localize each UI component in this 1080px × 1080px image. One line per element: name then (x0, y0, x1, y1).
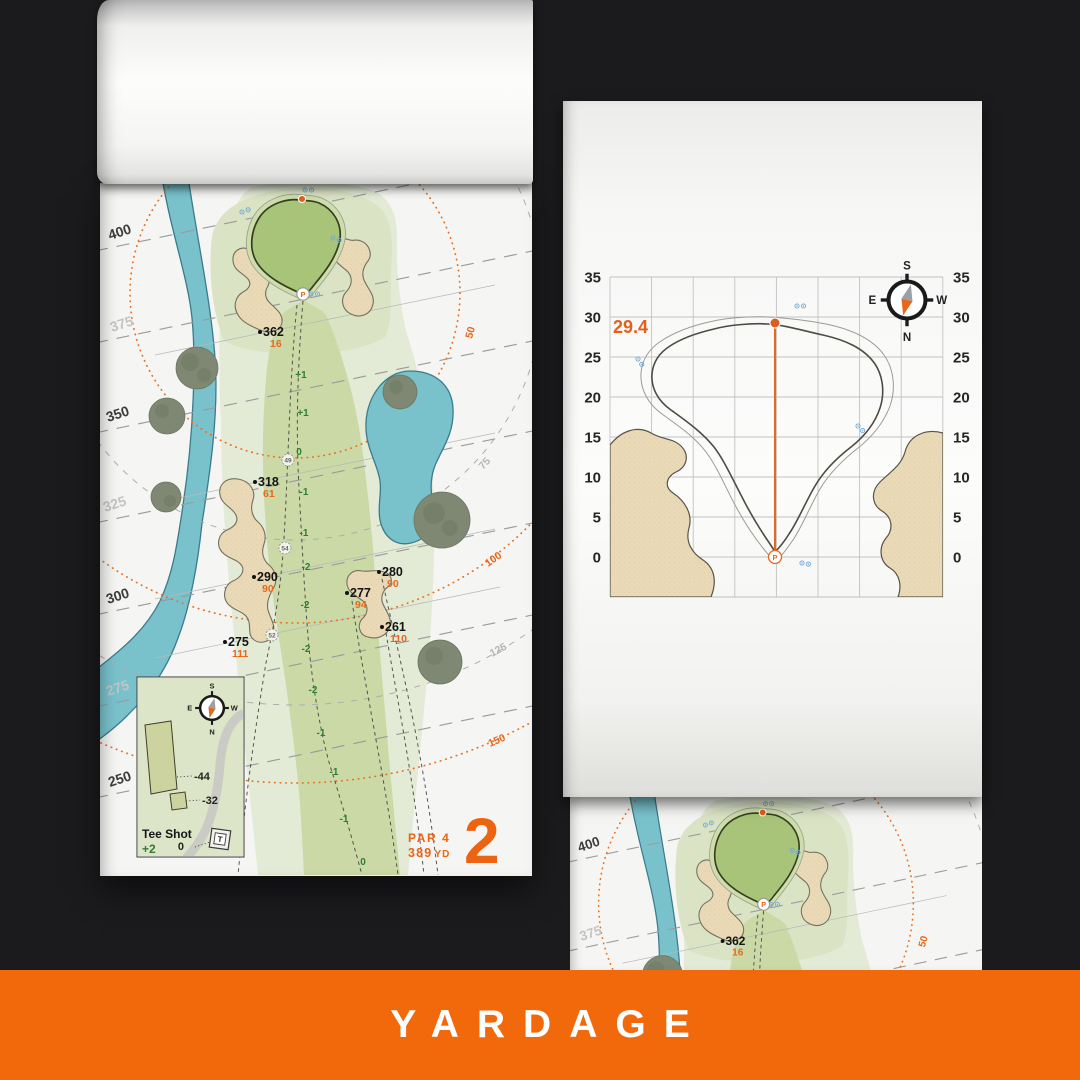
elevation-label: -1 (330, 767, 339, 778)
tee-box-forward (170, 792, 187, 810)
elevation-label: -2 (302, 644, 311, 655)
axis-tick: 20 (584, 390, 601, 407)
elevation-label: 0 (360, 857, 366, 868)
tee-inset-elevation: +2 (142, 842, 156, 856)
axis-tick: 25 (953, 350, 970, 367)
green-detail-page: 35 30 25 20 15 10 5 0 35 30 25 20 15 10 … (563, 101, 982, 797)
axis-tick: 30 (953, 310, 970, 327)
tee-shot-inset: -44 -32 0 T Tee Shot +2 (137, 677, 244, 859)
marker-carry: 318 (258, 475, 279, 489)
elevation-label: -1 (317, 728, 326, 739)
depth-measure: P (769, 318, 782, 564)
elevation-label: +1 (297, 408, 309, 419)
elevation-label: -1 (340, 814, 349, 825)
green-depth-reading: 29.4 (613, 317, 648, 337)
yardage-banner: YARDAGE (0, 970, 1080, 1080)
depth-axis-right: 35 30 25 20 15 10 5 0 (953, 270, 970, 567)
elevation-label: -1 (300, 487, 309, 498)
elevation-label: -1 (300, 528, 309, 539)
tee-inset-title: Tee Shot (142, 827, 192, 841)
marker-to-green: 90 (262, 583, 274, 595)
tee-offset-label: -44 (194, 771, 211, 783)
axis-tick: 30 (584, 310, 601, 327)
hole-map-page: S N W E (100, 183, 532, 876)
pin-label: P (300, 290, 305, 299)
tee-offset-label: 0 (178, 841, 184, 853)
pin-marker: P (297, 288, 309, 300)
marker-to-green: 90 (387, 578, 399, 590)
waypoint-label: 54 (281, 546, 289, 553)
axis-tick: 10 (584, 470, 601, 487)
axis-tick: 0 (953, 550, 961, 567)
par-label: PAR 4 (408, 831, 450, 845)
marker-carry: 261 (385, 620, 406, 634)
elevation-label: +1 (295, 370, 307, 381)
axis-tick: 5 (593, 510, 601, 527)
hole-map-drawing: 400 375 350 325 300 275 250 50 75 100 12… (100, 183, 532, 876)
marker-to-green: 94 (355, 599, 367, 611)
green-detail-svg: 35 30 25 20 15 10 5 0 35 30 25 20 15 10 … (563, 101, 982, 797)
green-page-compass (868, 261, 947, 344)
pin-label: P (772, 553, 777, 562)
axis-tick: 20 (953, 390, 970, 407)
axis-tick: 15 (953, 430, 970, 447)
marker-to-green: 16 (270, 338, 282, 350)
axis-tick: 25 (584, 350, 601, 367)
hole-map-svg: S N W E (100, 183, 532, 876)
waypoint-label: 49 (284, 458, 292, 465)
marker-carry: 362 (263, 325, 284, 339)
yardage-book-product-image: S N W E (0, 0, 1080, 1080)
elevation-label: -2 (309, 685, 318, 696)
tee-offset-label: -32 (202, 795, 218, 807)
axis-tick: 10 (953, 470, 970, 487)
axis-tick: 5 (953, 510, 961, 527)
depth-axis-left: 35 30 25 20 15 10 5 0 (584, 270, 601, 567)
banner-title: YARDAGE (372, 1003, 707, 1047)
hole-number: 2 (464, 805, 500, 876)
next-map-page (570, 797, 982, 970)
marker-carry: 290 (257, 570, 278, 584)
axis-tick: 0 (593, 550, 601, 567)
marker-carry: 275 (228, 635, 249, 649)
elevation-label: -2 (301, 600, 310, 611)
marker-carry: 280 (382, 565, 403, 579)
marker-to-green: 61 (263, 488, 275, 500)
axis-tick: 35 (584, 270, 601, 287)
axis-tick: 35 (953, 270, 970, 287)
tee-box-back (145, 721, 177, 794)
tee-marker-box: T (209, 828, 230, 849)
green-front-dot (298, 195, 305, 202)
next-map-svg (570, 797, 982, 970)
flipped-page-curl (97, 0, 533, 184)
marker-to-green: 110 (390, 633, 407, 645)
marker-to-green: 111 (232, 648, 249, 660)
yardage-label: 389YD (408, 846, 450, 860)
waypoint-label: 52 (268, 633, 276, 640)
elevation-label: -2 (302, 562, 311, 573)
axis-tick: 15 (584, 430, 601, 447)
elevation-label: 0 (296, 447, 302, 458)
marker-carry: 277 (350, 586, 371, 600)
